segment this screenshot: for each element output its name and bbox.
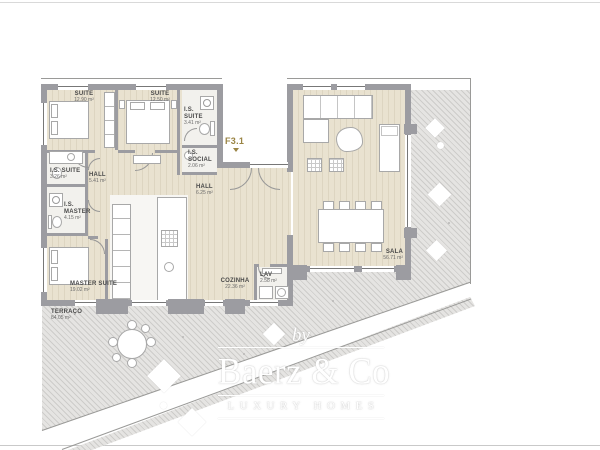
sink-bowl	[67, 153, 75, 161]
floorplan-page: SUITE 12.90 m² SUITE 12.50 m² I.S. SUITE…	[0, 0, 600, 450]
pillow	[51, 267, 58, 281]
cooktop	[161, 230, 178, 247]
terrace-chair	[127, 320, 137, 330]
wall-social-south	[182, 172, 217, 175]
wall-bath-divider	[182, 145, 217, 148]
room-label-is-master: I.S. MASTER 4.15 m²	[64, 202, 88, 222]
room-area: 2.58 m²	[260, 279, 286, 285]
room-area: 4.15 m²	[64, 216, 88, 222]
boundary-line-top-east	[287, 78, 471, 79]
terrace-chair	[112, 353, 121, 362]
pillar	[404, 124, 417, 134]
room-label-is-suite-west: I.S. SUITE 3.26 m²	[50, 168, 84, 181]
pillow	[51, 250, 58, 264]
nightstand	[119, 100, 125, 109]
room-area: 5.41 m²	[89, 179, 119, 185]
sofa	[303, 95, 373, 119]
sofa-chaise	[303, 119, 329, 143]
sliding-door-glass	[250, 300, 278, 306]
room-label-is-suite-east: I.S. SUITE 3.41 m²	[184, 107, 206, 127]
window	[337, 84, 365, 90]
room-label-cozinha: COZINHA 22.36 m²	[214, 278, 256, 291]
wall-suite2-south-b	[155, 150, 177, 153]
pouf	[307, 158, 322, 172]
toilet-tank	[210, 121, 215, 136]
room-name: I.S. SUITE	[184, 107, 206, 121]
kitchen-sink	[164, 262, 174, 272]
window	[41, 103, 47, 145]
daybed-pillow	[381, 126, 398, 136]
hall-console	[133, 155, 161, 164]
window-hall	[250, 162, 288, 168]
coffee-table	[336, 127, 363, 152]
vanity-is-suite-west	[49, 151, 83, 164]
watermark-rule	[218, 418, 384, 419]
room-area: 3.26 m²	[50, 175, 84, 181]
wall-ismaster-south	[47, 233, 88, 236]
sliding-door-glass	[362, 266, 394, 272]
kitchen-island	[157, 197, 187, 301]
wall-suite2-south-a	[118, 150, 135, 153]
dining-chair	[339, 243, 350, 252]
wall-sala-west-upper	[287, 84, 293, 172]
pillar	[293, 265, 307, 280]
pillar	[396, 265, 411, 280]
boundary-line-right	[470, 78, 471, 284]
terrace-chair	[141, 324, 150, 333]
unit-marker-triangle-icon	[233, 148, 239, 152]
pillar	[404, 228, 417, 238]
room-area: 56.71 m²	[371, 256, 403, 262]
sink-bowl	[203, 99, 211, 107]
boundary-line-top-west	[41, 78, 222, 79]
dining-chair	[323, 243, 334, 252]
room-label-is-social: I.S. SOCIAL 2.06 m²	[188, 150, 220, 170]
terrace-dot	[182, 336, 184, 338]
pillow	[51, 104, 58, 118]
wall-lav-north-b	[270, 264, 291, 267]
room-label-terraco: TERRAÇO 84.05 m²	[51, 309, 91, 322]
room-area: 6.25 m²	[196, 191, 226, 197]
sink-bowl	[52, 196, 60, 204]
window	[303, 84, 331, 90]
laundry-unit	[259, 286, 273, 299]
room-label-hall-west: HALL 5.41 m²	[89, 172, 119, 185]
dining-chair	[339, 201, 350, 210]
toilet-bowl	[52, 216, 62, 228]
room-area: 84.05 m²	[51, 316, 91, 322]
window	[136, 84, 166, 90]
sliding-door-glass	[205, 300, 223, 306]
room-area: 12.90 m²	[64, 98, 104, 104]
dining-chair	[355, 243, 366, 252]
window	[58, 84, 88, 90]
room-label-suite2: SUITE 12.50 m²	[140, 91, 180, 104]
room-area: 12.50 m²	[140, 98, 180, 104]
terrace-table	[117, 329, 147, 359]
pouf	[329, 158, 344, 172]
dining-chair	[323, 201, 334, 210]
room-label-suite1: SUITE 12.90 m²	[64, 91, 104, 104]
terrace-chair	[108, 337, 118, 347]
terrace-chair	[146, 337, 156, 347]
washer-drum	[277, 288, 286, 297]
room-label-master: MASTER SUITE 19.02 m²	[70, 281, 118, 294]
top-hairline	[0, 2, 600, 3]
watermark-tagline: LUXURY HOMES	[218, 396, 384, 418]
room-area: 2.06 m²	[188, 164, 220, 170]
room-label-hall-east: HALL 6.25 m²	[196, 184, 226, 197]
watermark-by: by	[218, 325, 384, 347]
pillar	[225, 299, 245, 314]
pillow	[51, 121, 58, 135]
wardrobe-suite1	[104, 92, 115, 148]
dining-chair	[371, 201, 382, 210]
sliding-door-glass	[405, 135, 411, 227]
pillar	[168, 299, 204, 314]
room-area: 19.02 m²	[70, 288, 118, 294]
room-area: 22.36 m²	[214, 285, 256, 291]
terrace-dot	[448, 222, 450, 224]
wall-iswest-south	[47, 184, 88, 187]
room-label-sala: SALA 56.71 m²	[371, 249, 403, 262]
terrace-pebble	[159, 401, 169, 411]
room-label-lav: LAV 2.58 m²	[260, 272, 286, 285]
unit-label: F3.1	[225, 136, 244, 146]
terrace-dot	[332, 300, 334, 302]
pillar	[96, 299, 128, 314]
room-name: I.S. MASTER	[64, 202, 88, 216]
sliding-door-glass	[75, 300, 97, 306]
room-name: I.S. SOCIAL	[188, 150, 220, 164]
dining-chair	[355, 201, 366, 210]
sliding-door-glass	[132, 300, 166, 306]
window	[41, 248, 47, 292]
watermark-brand: Baerz & Co	[218, 347, 384, 397]
terrace-chair	[127, 358, 137, 368]
sliding-door-glass	[310, 266, 354, 272]
dining-table	[318, 209, 384, 243]
room-area: 3.41 m²	[184, 121, 206, 127]
wall-suite1-suite2	[115, 90, 118, 150]
watermark: by Baerz & Co LUXURY HOMES	[218, 325, 384, 419]
